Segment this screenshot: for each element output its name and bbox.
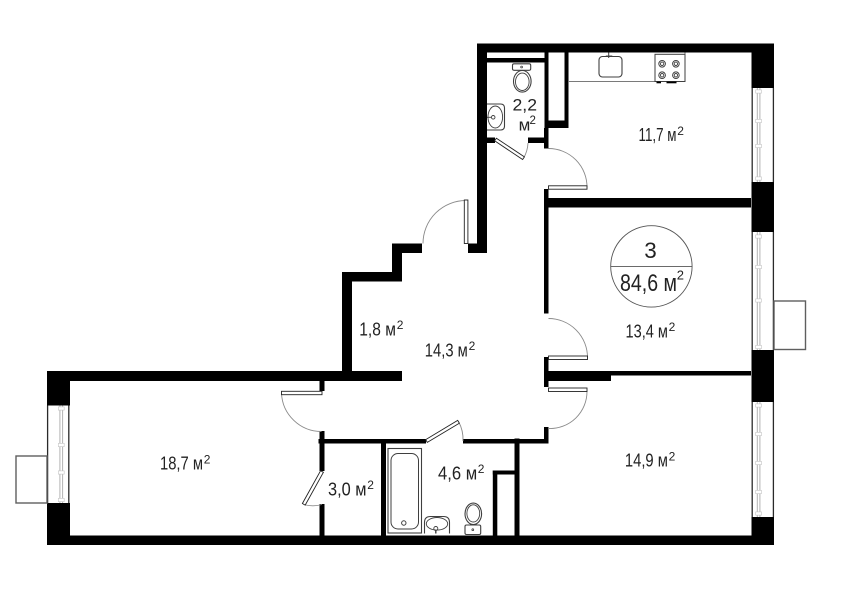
svg-text:4,6 м: 4,6 м [438, 464, 477, 484]
svg-text:2: 2 [669, 320, 676, 334]
svg-text:2,2: 2,2 [513, 96, 538, 115]
svg-text:2: 2 [530, 115, 536, 127]
svg-text:2: 2 [478, 462, 485, 476]
svg-text:14,3 м: 14,3 м [425, 340, 468, 360]
svg-text:84,6 м: 84,6 м [620, 270, 677, 297]
svg-text:3: 3 [644, 238, 657, 263]
svg-text:3,0 м: 3,0 м [328, 480, 367, 500]
svg-text:18,7 м: 18,7 м [160, 454, 203, 474]
svg-text:2: 2 [677, 124, 684, 138]
svg-text:2: 2 [367, 478, 374, 492]
svg-text:2: 2 [669, 449, 676, 463]
svg-text:1,8 м: 1,8 м [359, 319, 396, 339]
svg-text:11,7 м: 11,7 м [639, 125, 677, 145]
svg-text:14,9 м: 14,9 м [625, 451, 668, 471]
svg-text:2: 2 [397, 318, 404, 332]
svg-text:13,4 м: 13,4 м [626, 322, 668, 342]
svg-text:2: 2 [469, 339, 476, 353]
svg-text:2: 2 [204, 452, 211, 466]
svg-text:2: 2 [677, 268, 684, 283]
